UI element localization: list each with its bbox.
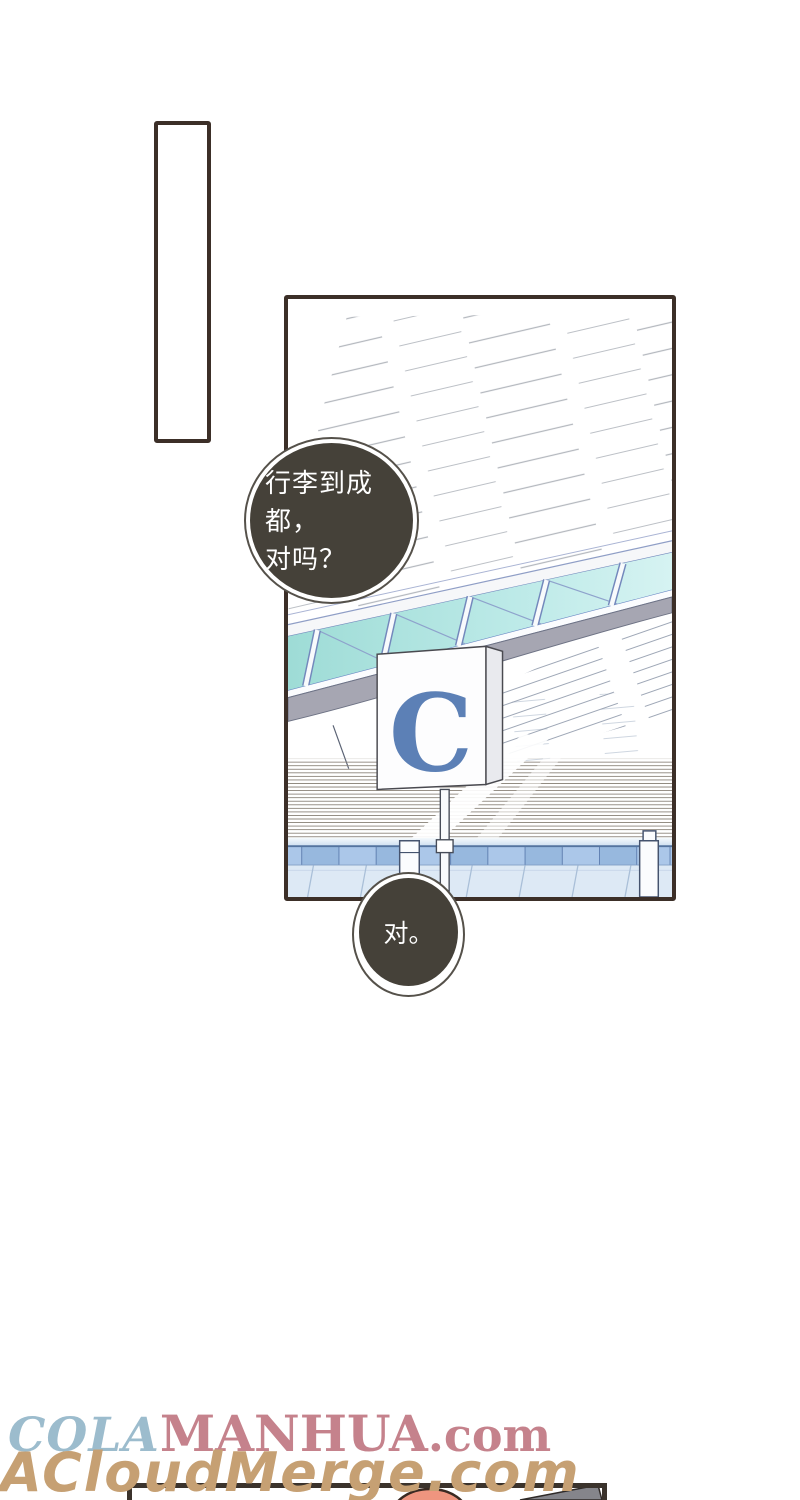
gate-sign: C	[377, 646, 502, 796]
speech-bubble-question-fill: 行李到成都， 对吗？	[250, 443, 413, 598]
empty-vertical-panel	[154, 121, 211, 443]
speech-text-answer: 对。	[359, 914, 458, 950]
glass-railing	[288, 846, 672, 866]
railing-glow-band	[288, 838, 672, 846]
speech-bubble-answer-fill: 对。	[359, 878, 458, 986]
speech-text-line1: 行李到成都，	[265, 464, 413, 540]
lower-wall	[288, 865, 672, 897]
speech-bubble-answer: 对。	[352, 872, 465, 997]
speech-bubble-question: 行李到成都， 对吗？	[244, 437, 419, 604]
gate-sign-letter: C	[389, 671, 473, 796]
speech-text-line2: 对吗？	[265, 540, 413, 578]
watermark-acloudmerge: ACloudMerge.com	[0, 1441, 581, 1500]
